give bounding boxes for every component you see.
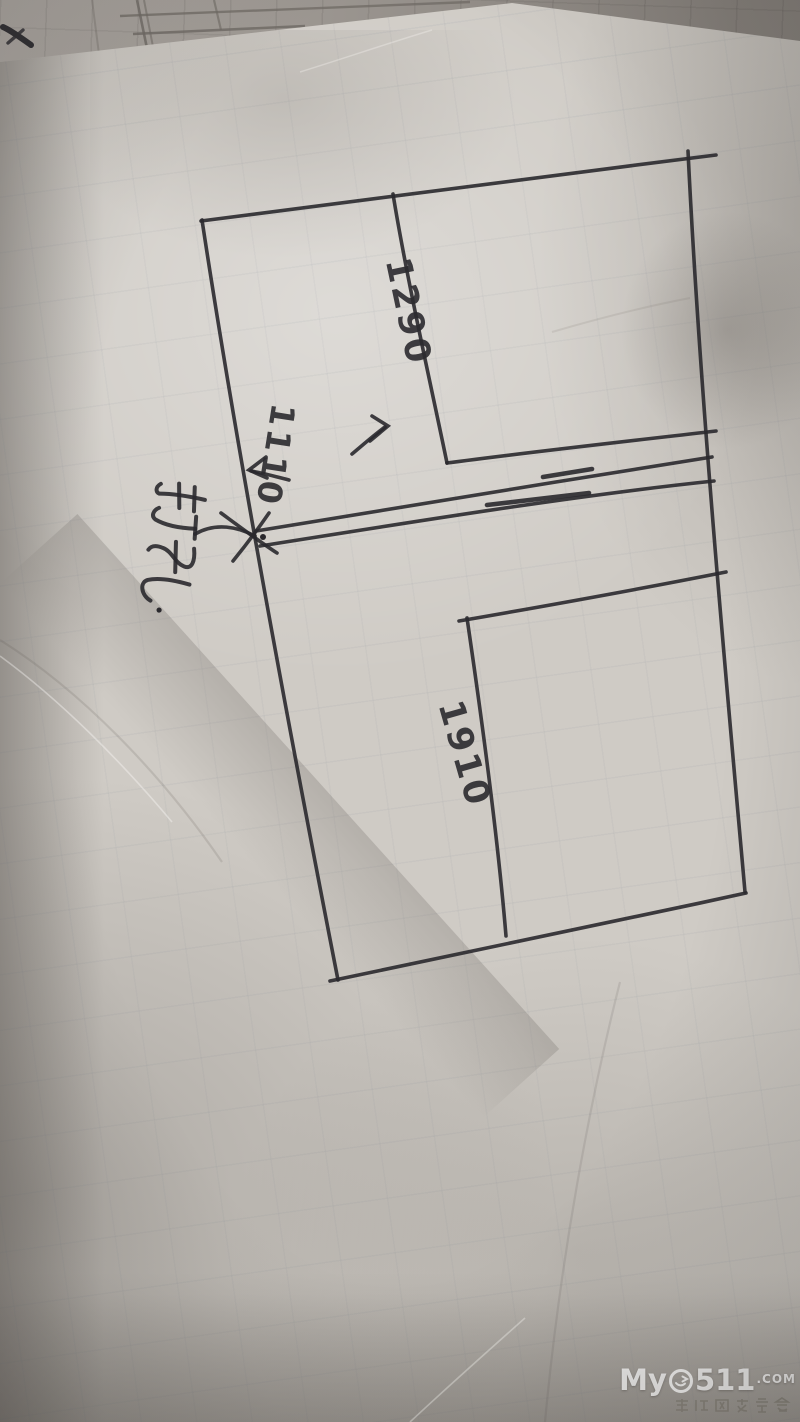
watermark-tagline: 镇江网友之家 [606, 1397, 796, 1414]
lower-shelf-line [459, 572, 726, 621]
tagline-glyph [776, 1398, 788, 1411]
leader-line [195, 527, 255, 536]
watermark: My 511 .COM 镇江网友之家 [606, 1365, 796, 1414]
tagline-glyph [696, 1400, 708, 1411]
gap-line-lower [260, 481, 714, 546]
watermark-brand-number: 511 [695, 1366, 756, 1395]
outer-rectangle [201, 151, 746, 981]
watermark-brand-suffix: .COM [756, 1365, 796, 1396]
watermark-brand: My 511 .COM [606, 1365, 796, 1396]
annotation-hanzi-strokes [138, 480, 207, 617]
watermark-brand-prefix: My [619, 1366, 667, 1395]
paper-sheet: 1290 1110 1910 打孔. [0, 0, 800, 1422]
tagline-glyph [716, 1400, 728, 1411]
period-dot [156, 607, 162, 613]
arrow-up-right-icon [352, 416, 388, 454]
hanzi-kong-stroke [147, 542, 196, 568]
upper-shelf-line [447, 431, 716, 463]
pencil-line [214, 0, 221, 30]
top-edge-line [201, 155, 716, 221]
x-position-mark [221, 513, 277, 561]
bottom-edge-line [330, 893, 746, 981]
pen-sketch [0, 0, 800, 1422]
photo-of-hand-drawn-sketch: 1290 1110 1910 打孔. My 511 .COM [0, 0, 800, 1422]
inner-lines [256, 194, 726, 936]
hanzi-kong-stroke [140, 576, 189, 606]
pencil-line [92, 0, 99, 54]
left-edge-line [202, 220, 338, 980]
wink-smiley-icon [668, 1368, 694, 1394]
right-edge-line [688, 151, 745, 892]
tagline-glyph [756, 1399, 768, 1412]
watermark-tagline-glyphs [674, 1397, 796, 1414]
tagline-glyph [737, 1399, 748, 1412]
gap-line-upper [256, 457, 712, 531]
hanzi-da-stroke [152, 507, 198, 530]
arrow-head [370, 416, 388, 441]
tagline-glyph [676, 1399, 688, 1412]
x-mark-dot [260, 534, 266, 540]
